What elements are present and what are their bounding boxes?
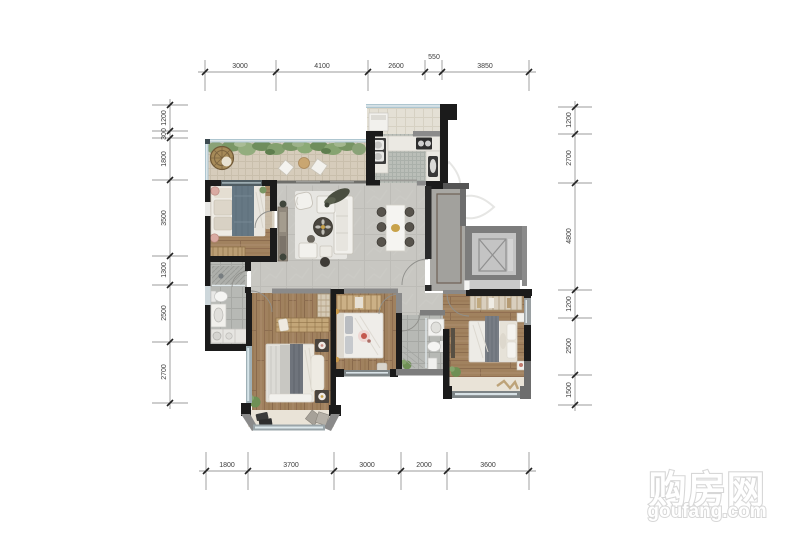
svg-text:1800: 1800 bbox=[219, 462, 235, 469]
svg-text:1500: 1500 bbox=[566, 382, 573, 398]
svg-text:3600: 3600 bbox=[480, 462, 496, 469]
svg-text:1200: 1200 bbox=[566, 296, 573, 312]
svg-text:3700: 3700 bbox=[283, 462, 299, 469]
svg-text:goufang.com: goufang.com bbox=[647, 501, 766, 522]
svg-text:2600: 2600 bbox=[388, 63, 404, 70]
svg-text:3850: 3850 bbox=[477, 63, 493, 70]
svg-text:2500: 2500 bbox=[161, 305, 168, 321]
svg-text:1300: 1300 bbox=[161, 262, 168, 278]
svg-text:3000: 3000 bbox=[359, 462, 375, 469]
svg-text:1200: 1200 bbox=[161, 110, 168, 126]
svg-text:4800: 4800 bbox=[566, 228, 573, 244]
svg-text:3000: 3000 bbox=[232, 63, 248, 70]
svg-text:2000: 2000 bbox=[416, 462, 432, 469]
svg-text:1800: 1800 bbox=[161, 151, 168, 167]
svg-text:300: 300 bbox=[161, 128, 168, 140]
svg-text:550: 550 bbox=[428, 54, 440, 61]
svg-text:4100: 4100 bbox=[314, 63, 330, 70]
svg-text:1200: 1200 bbox=[566, 112, 573, 128]
svg-text:2500: 2500 bbox=[566, 338, 573, 354]
svg-text:3500: 3500 bbox=[161, 210, 168, 226]
svg-text:2700: 2700 bbox=[161, 364, 168, 380]
svg-text:2700: 2700 bbox=[566, 150, 573, 166]
